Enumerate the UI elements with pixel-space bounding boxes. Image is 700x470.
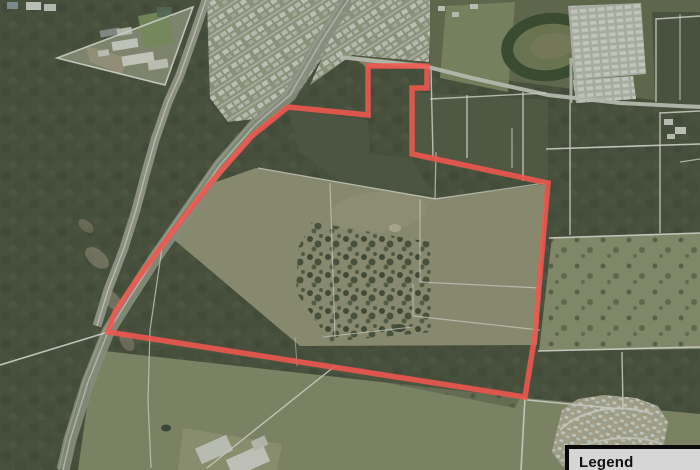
photo-grain-light [0,0,700,470]
aerial-map-page: Legend [0,0,700,470]
legend-panel: Legend [565,445,700,470]
aerial-map [0,0,700,470]
legend-title: Legend [579,454,634,470]
